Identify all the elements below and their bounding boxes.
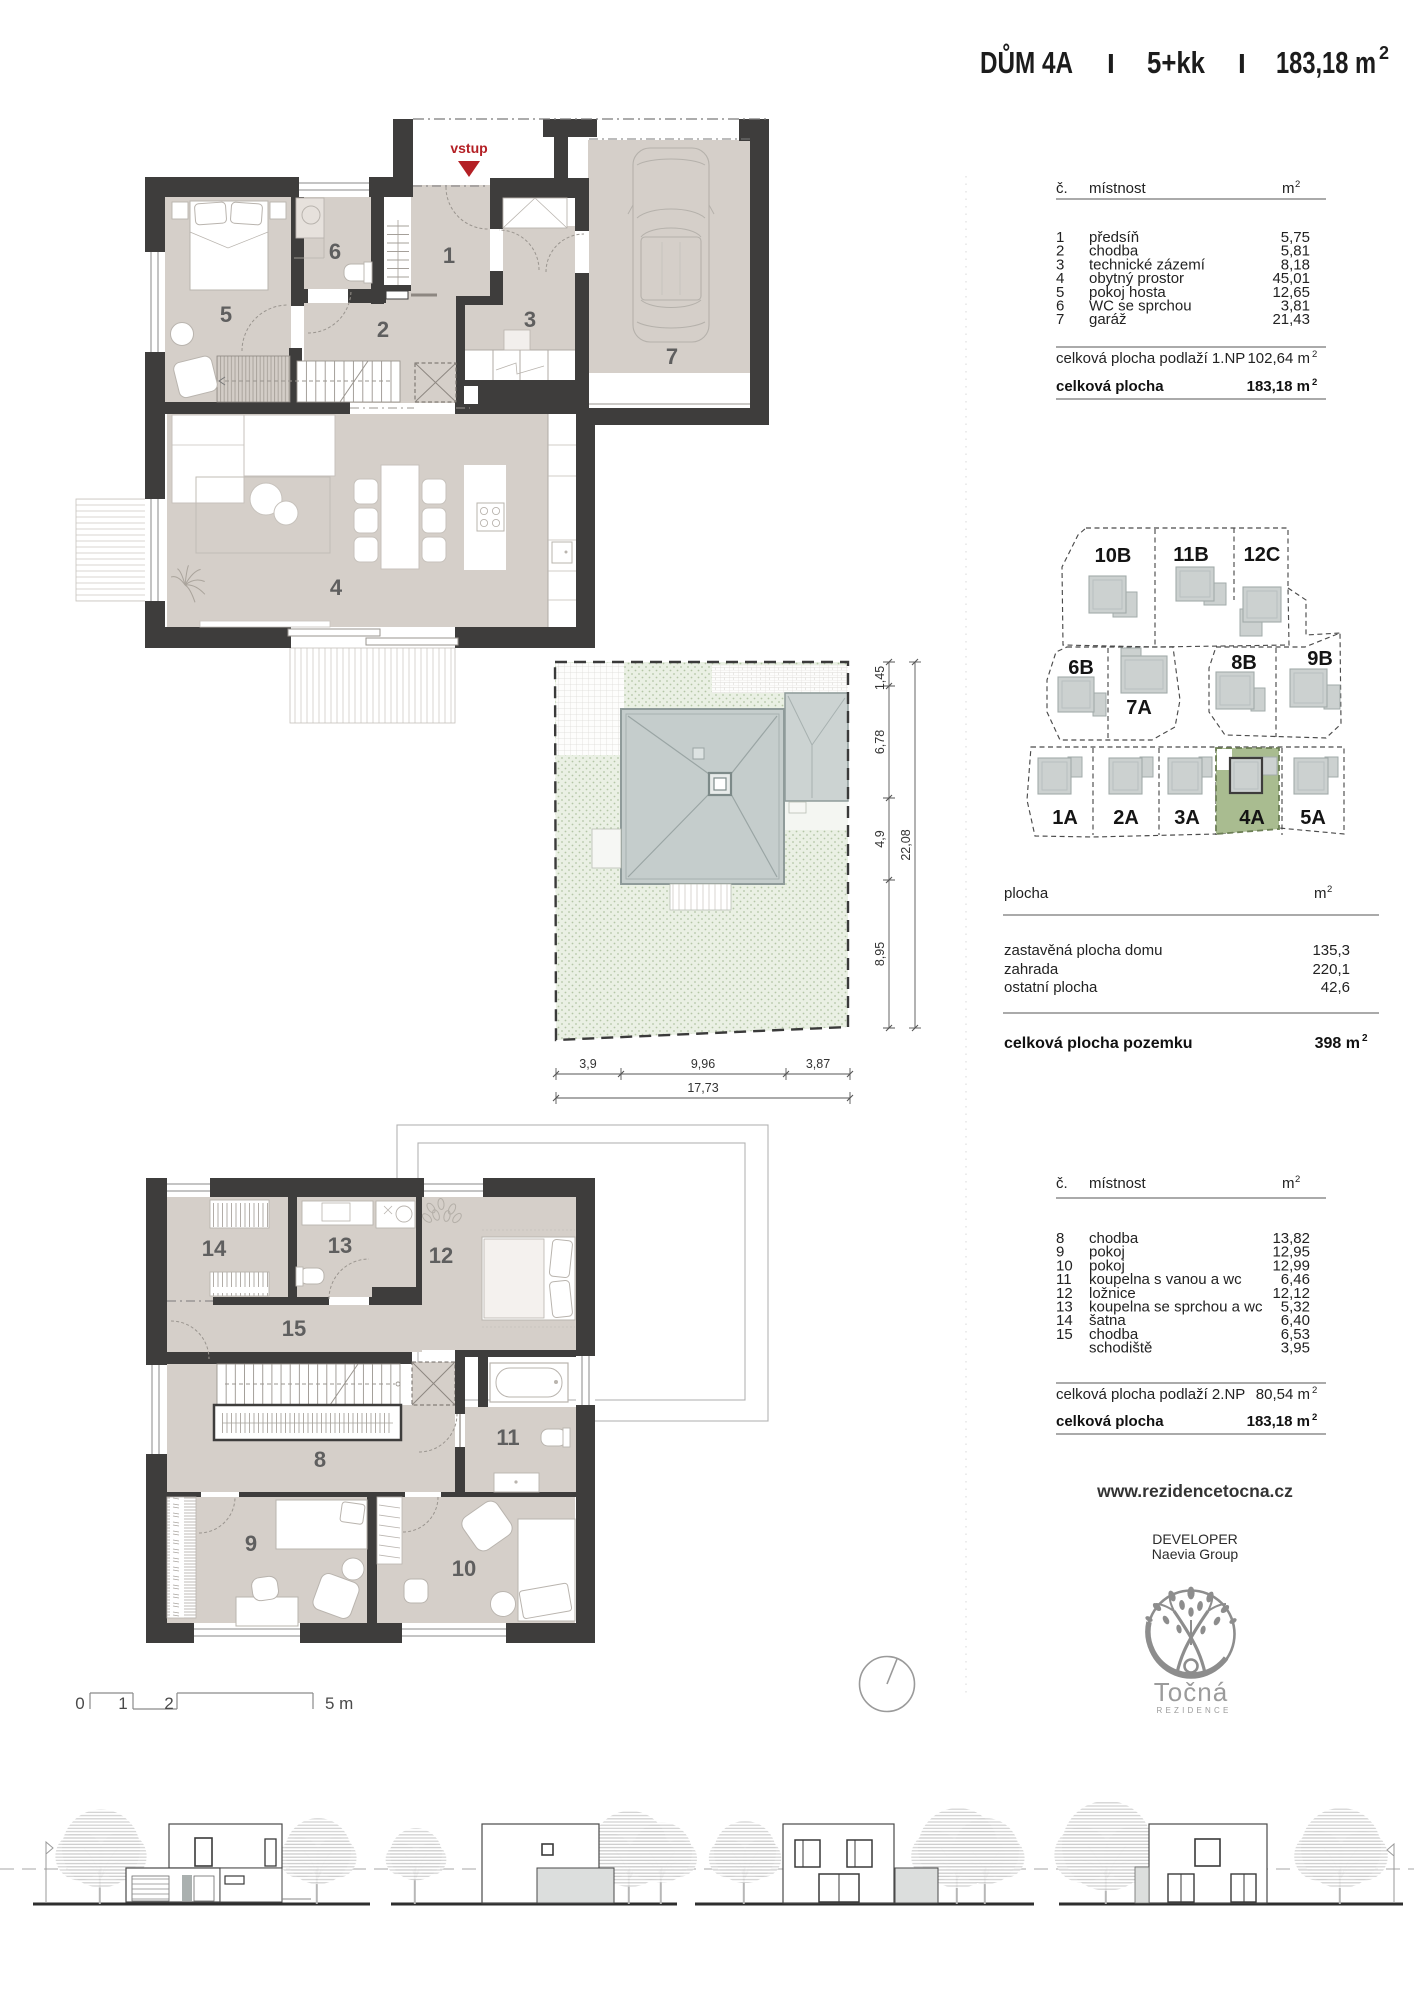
svg-text:1: 1 [443,243,455,268]
svg-text:183,18 m: 183,18 m [1247,378,1310,395]
svg-text:celková plocha podlaží 1.NP: celková plocha podlaží 1.NP [1056,350,1245,367]
svg-text:13: 13 [328,1233,352,1258]
svg-text:3,95: 3,95 [1281,1340,1310,1357]
svg-text:7: 7 [666,344,678,369]
svg-text:5 m: 5 m [325,1694,353,1713]
svg-text:5: 5 [220,302,232,327]
svg-text:21,43: 21,43 [1272,311,1310,328]
svg-text:2: 2 [1327,884,1332,895]
svg-text:1A: 1A [1052,807,1078,829]
svg-text:schodiště: schodiště [1089,1340,1152,1357]
svg-text:celková plocha podlaží 2.NP: celková plocha podlaží 2.NP [1056,1386,1245,1403]
svg-text:135,3: 135,3 [1312,942,1350,959]
svg-text:183,18 m: 183,18 m [1276,45,1376,80]
svg-text:15: 15 [1056,1326,1073,1343]
svg-text:1: 1 [118,1694,127,1713]
svg-text:0: 0 [75,1694,84,1713]
svg-text:I: I [1107,48,1115,79]
svg-text:10B: 10B [1095,545,1132,567]
svg-text:Naevia Group: Naevia Group [1152,1546,1239,1562]
svg-text:12C: 12C [1244,544,1281,566]
svg-text:9B: 9B [1307,648,1333,670]
svg-text:11B: 11B [1173,544,1209,566]
svg-text:6: 6 [329,239,341,264]
svg-text:Točná: Točná [1154,1677,1228,1707]
svg-text:5A: 5A [1300,807,1326,829]
svg-text:3: 3 [524,307,536,332]
svg-text:3,9: 3,9 [579,1057,596,1071]
svg-text:10: 10 [452,1556,476,1581]
svg-text:č.: č. [1056,1175,1068,1192]
svg-text:2: 2 [1312,377,1317,388]
svg-text:ostatní plocha: ostatní plocha [1004,979,1098,996]
svg-text:4,9: 4,9 [873,830,887,847]
svg-text:15: 15 [282,1316,306,1341]
svg-text:12: 12 [429,1243,453,1268]
svg-text:8,95: 8,95 [873,942,887,966]
svg-text:6,78: 6,78 [873,730,887,754]
svg-text:zastavěná plocha domu: zastavěná plocha domu [1004,942,1162,959]
svg-text:4A: 4A [1239,807,1265,829]
svg-text:22,08: 22,08 [899,829,913,860]
svg-text:14: 14 [202,1236,227,1261]
svg-text:398 m: 398 m [1315,1035,1360,1052]
svg-text:garáž: garáž [1089,311,1127,328]
svg-text:42,6: 42,6 [1321,979,1350,996]
svg-text:DŮM 4A: DŮM 4A [980,42,1073,80]
svg-text:celková plocha pozemku: celková plocha pozemku [1004,1035,1193,1052]
svg-text:plocha: plocha [1004,885,1049,902]
svg-text:220,1: 220,1 [1312,961,1350,978]
svg-text:9: 9 [245,1531,257,1556]
svg-text:7: 7 [1056,311,1064,328]
svg-text:2: 2 [1295,1174,1300,1185]
svg-text:3,87: 3,87 [806,1057,830,1071]
svg-text:DEVELOPER: DEVELOPER [1152,1531,1238,1547]
svg-text:1,45: 1,45 [873,666,887,690]
svg-text:2: 2 [1312,1412,1317,1423]
svg-text:celková plocha: celková plocha [1056,1413,1164,1430]
svg-text:REZIDENCE: REZIDENCE [1156,1706,1231,1715]
svg-text:celková plocha: celková plocha [1056,378,1164,395]
svg-text:www.rezidencetocna.cz: www.rezidencetocna.cz [1096,1481,1293,1501]
svg-text:2: 2 [1295,179,1300,190]
svg-text:zahrada: zahrada [1004,961,1059,978]
svg-text:m: m [1282,1175,1295,1192]
svg-text:8B: 8B [1231,652,1257,674]
svg-text:8: 8 [314,1447,326,1472]
svg-text:2A: 2A [1113,807,1139,829]
svg-text:2: 2 [1312,1385,1317,1396]
svg-text:6B: 6B [1068,657,1094,679]
svg-text:7A: 7A [1126,697,1152,719]
svg-text:3A: 3A [1174,807,1200,829]
svg-text:2: 2 [377,317,389,342]
svg-text:5+kk: 5+kk [1147,45,1206,80]
svg-text:2: 2 [164,1694,173,1713]
svg-text:místnost: místnost [1089,1175,1147,1192]
svg-text:m: m [1314,885,1327,902]
svg-text:vstup: vstup [450,140,487,156]
svg-text:183,18 m: 183,18 m [1247,1413,1310,1430]
svg-text:č.: č. [1056,180,1068,197]
svg-text:m: m [1282,180,1295,197]
svg-text:2: 2 [1379,43,1389,63]
svg-text:17,73: 17,73 [687,1081,718,1095]
svg-text:2: 2 [1312,349,1317,360]
svg-text:2: 2 [1362,1033,1368,1044]
svg-text:9,96: 9,96 [691,1057,715,1071]
svg-text:11: 11 [496,1425,519,1450]
svg-text:místnost: místnost [1089,180,1147,197]
svg-text:102,64 m: 102,64 m [1247,350,1310,367]
svg-text:4: 4 [330,575,343,600]
svg-text:I: I [1238,48,1246,79]
svg-text:80,54 m: 80,54 m [1256,1386,1310,1403]
